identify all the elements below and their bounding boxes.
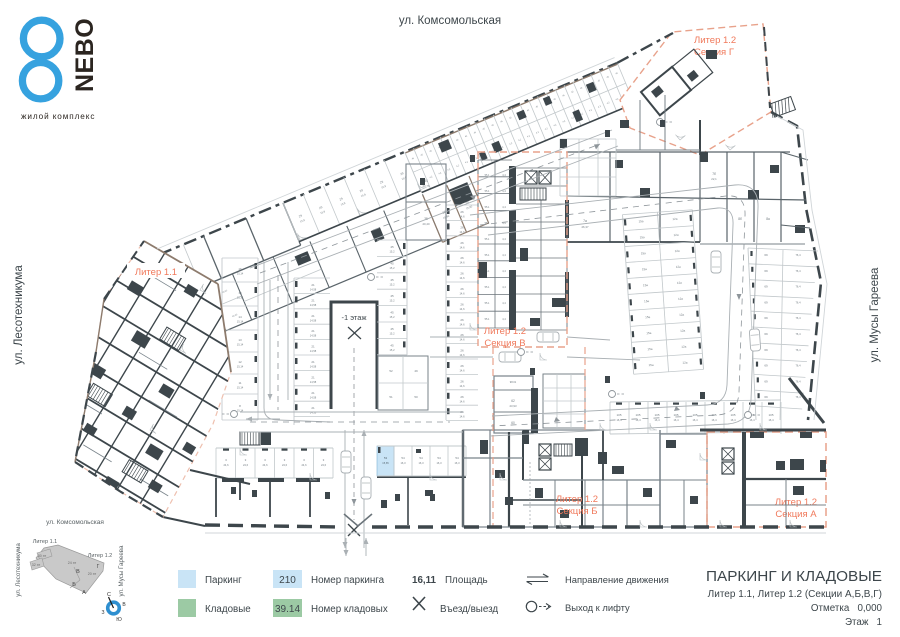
svg-text:С: С bbox=[107, 592, 111, 598]
svg-text:Ю: Ю bbox=[116, 617, 122, 623]
svg-text:39.14: 39.14 bbox=[275, 604, 300, 615]
svg-text:21: 21 bbox=[311, 360, 315, 364]
svg-text:12а: 12а bbox=[680, 329, 686, 333]
svg-text:12а: 12а bbox=[679, 313, 685, 317]
svg-text:14,6: 14,6 bbox=[459, 292, 465, 296]
svg-text:14,6: 14,6 bbox=[459, 415, 465, 419]
svg-text:11: 11 bbox=[238, 381, 241, 385]
svg-text:Выход к лифту: Выход к лифту bbox=[565, 602, 630, 613]
svg-text:16,4: 16,4 bbox=[654, 418, 660, 422]
svg-text:210: 210 bbox=[279, 575, 296, 586]
svg-text:45: 45 bbox=[390, 261, 394, 265]
svg-text:23,93: 23,93 bbox=[510, 404, 517, 408]
svg-text:Секция А: Секция А bbox=[775, 509, 817, 520]
svg-text:49: 49 bbox=[414, 369, 418, 373]
svg-text:Литер 1.2: Литер 1.2 bbox=[694, 35, 736, 46]
svg-text:15а: 15а bbox=[638, 219, 644, 223]
svg-text:16,4: 16,4 bbox=[768, 418, 774, 422]
svg-text:54: 54 bbox=[455, 456, 459, 460]
svg-text:76,4: 76,4 bbox=[795, 316, 801, 320]
svg-text:15,2: 15,2 bbox=[389, 299, 395, 303]
svg-text:69: 69 bbox=[764, 316, 768, 320]
svg-text:21: 21 bbox=[311, 283, 315, 287]
svg-text:69: 69 bbox=[764, 395, 768, 399]
svg-text:Номер паркинга: Номер паркинга bbox=[311, 575, 385, 586]
svg-text:20,40: 20,40 bbox=[423, 222, 430, 226]
svg-text:45: 45 bbox=[390, 327, 394, 331]
svg-text:54: 54 bbox=[401, 456, 405, 460]
svg-text:16,3: 16,3 bbox=[436, 461, 442, 465]
svg-text:45: 45 bbox=[390, 278, 394, 282]
svg-text:8б: 8б bbox=[738, 217, 742, 221]
svg-text:15,2: 15,2 bbox=[389, 315, 395, 319]
svg-text:15а: 15а bbox=[647, 347, 653, 351]
svg-text:76,4: 76,4 bbox=[795, 364, 801, 368]
svg-text:26,37: 26,37 bbox=[582, 225, 589, 229]
svg-text:12а: 12а bbox=[677, 281, 683, 285]
svg-text:15,14: 15,14 bbox=[237, 296, 244, 300]
svg-text:Литер 1.2: Литер 1.2 bbox=[775, 497, 817, 508]
svg-text:69: 69 bbox=[764, 253, 768, 257]
svg-text:21: 21 bbox=[311, 314, 315, 318]
svg-text:А: А bbox=[82, 590, 86, 596]
svg-text:76,4: 76,4 bbox=[795, 285, 801, 289]
svg-text:14,6: 14,6 bbox=[459, 245, 465, 249]
svg-text:14,58: 14,58 bbox=[310, 334, 317, 338]
svg-text:54: 54 bbox=[419, 456, 423, 460]
svg-text:105: 105 bbox=[730, 413, 735, 417]
svg-text:52: 52 bbox=[389, 369, 393, 373]
svg-text:8а: 8а bbox=[766, 217, 770, 221]
svg-text:105: 105 bbox=[654, 413, 659, 417]
svg-text:16,3: 16,3 bbox=[418, 461, 424, 465]
svg-text:7б: 7б bbox=[712, 172, 716, 176]
svg-text:26: 26 bbox=[460, 225, 464, 229]
svg-text:13: 13 bbox=[238, 338, 242, 342]
svg-text:69: 69 bbox=[764, 285, 768, 289]
svg-text:4,4: 4,4 bbox=[502, 286, 506, 289]
svg-text:32 эт: 32 эт bbox=[32, 563, 41, 567]
svg-text:15,2: 15,2 bbox=[389, 348, 395, 352]
svg-text:76,4: 76,4 bbox=[795, 300, 801, 304]
svg-text:14,6: 14,6 bbox=[459, 399, 465, 403]
svg-text:15а: 15а bbox=[642, 267, 648, 271]
svg-text:26: 26 bbox=[460, 272, 464, 276]
svg-text:15,2: 15,2 bbox=[389, 266, 395, 270]
svg-text:15,14: 15,14 bbox=[237, 386, 244, 390]
svg-text:Паркинг: Паркинг bbox=[205, 575, 242, 586]
svg-text:Литер 1.2: Литер 1.2 bbox=[556, 494, 598, 505]
svg-text:21: 21 bbox=[311, 329, 315, 333]
svg-text:55.1: 55.1 bbox=[485, 254, 490, 257]
svg-text:16,11: 16,11 bbox=[412, 575, 437, 586]
svg-text:14,6: 14,6 bbox=[459, 338, 465, 342]
svg-text:76,4: 76,4 bbox=[795, 253, 801, 257]
svg-text:14,6: 14,6 bbox=[459, 276, 465, 280]
svg-text:15а: 15а bbox=[641, 251, 647, 255]
svg-text:ул. Лесотехникума: ул. Лесотехникума bbox=[13, 265, 25, 365]
svg-text:54: 54 bbox=[437, 456, 441, 460]
svg-text:14,6: 14,6 bbox=[459, 353, 465, 357]
svg-text:ул. Мусы Гареева: ул. Мусы Гареева bbox=[118, 545, 125, 596]
svg-text:26: 26 bbox=[460, 395, 464, 399]
svg-text:26: 26 bbox=[460, 241, 464, 245]
svg-text:14,58: 14,58 bbox=[310, 380, 317, 384]
svg-text:22,1: 22,1 bbox=[711, 177, 717, 181]
svg-text:55.1: 55.1 bbox=[485, 238, 490, 241]
svg-text:45: 45 bbox=[390, 311, 394, 315]
svg-text:15а: 15а bbox=[644, 299, 650, 303]
svg-text:76,4: 76,4 bbox=[795, 332, 801, 336]
svg-text:45: 45 bbox=[390, 245, 394, 249]
svg-text:105: 105 bbox=[673, 413, 678, 417]
svg-text:24,6: 24,6 bbox=[243, 463, 249, 467]
svg-text:24,6: 24,6 bbox=[223, 463, 229, 467]
svg-text:14,6: 14,6 bbox=[459, 307, 465, 311]
svg-text:105: 105 bbox=[692, 413, 697, 417]
svg-text:Литер 1.2: Литер 1.2 bbox=[484, 326, 526, 337]
svg-text:12а: 12а bbox=[673, 233, 679, 237]
svg-text:15а: 15а bbox=[646, 331, 652, 335]
svg-text:Кладовые: Кладовые bbox=[205, 604, 251, 615]
svg-text:Этаж 1: Этаж 1 bbox=[845, 617, 882, 628]
svg-text:26: 26 bbox=[460, 256, 464, 260]
svg-text:14,58: 14,58 bbox=[310, 349, 317, 353]
svg-text:55.1: 55.1 bbox=[485, 318, 490, 321]
svg-text:30 эт: 30 эт bbox=[38, 554, 47, 558]
svg-text:105: 105 bbox=[616, 413, 621, 417]
svg-text:12а: 12а bbox=[675, 249, 681, 253]
svg-text:4,4: 4,4 bbox=[502, 238, 506, 241]
svg-text:15,2: 15,2 bbox=[389, 282, 395, 286]
svg-text:Литер 1.1: Литер 1.1 bbox=[33, 539, 57, 545]
svg-text:76,4: 76,4 bbox=[795, 379, 801, 383]
svg-text:Въезд/выезд: Въезд/выезд bbox=[440, 604, 498, 615]
svg-text:ул. Лесотехникума: ул. Лесотехникума bbox=[15, 543, 22, 597]
svg-text:12а: 12а bbox=[681, 344, 687, 348]
svg-text:4,4: 4,4 bbox=[502, 302, 506, 305]
svg-text:14,6: 14,6 bbox=[459, 322, 465, 326]
svg-text:Площадь: Площадь bbox=[445, 575, 488, 586]
svg-text:16: 16 bbox=[238, 267, 242, 271]
svg-text:76,4: 76,4 bbox=[795, 269, 801, 273]
svg-text:26: 26 bbox=[460, 302, 464, 306]
svg-text:21: 21 bbox=[311, 375, 315, 379]
svg-text:14,6: 14,6 bbox=[459, 369, 465, 373]
svg-text:4,4: 4,4 bbox=[502, 254, 506, 257]
svg-text:26: 26 bbox=[460, 210, 464, 214]
svg-text:14,58: 14,58 bbox=[310, 411, 317, 415]
svg-text:14,58: 14,58 bbox=[310, 318, 317, 322]
svg-text:15,14: 15,14 bbox=[237, 365, 244, 369]
svg-text:60: 60 bbox=[511, 421, 515, 425]
svg-text:20 эт: 20 эт bbox=[88, 572, 97, 576]
svg-text:16,4: 16,4 bbox=[692, 418, 698, 422]
svg-text:105: 105 bbox=[768, 413, 773, 417]
svg-text:ул. Комсомольская: ул. Комсомольская bbox=[46, 519, 104, 526]
svg-text:15а: 15а bbox=[639, 235, 645, 239]
svg-text:-1 этаж: -1 этаж bbox=[342, 313, 367, 322]
svg-text:4,4: 4,4 bbox=[502, 318, 506, 321]
svg-text:26: 26 bbox=[460, 349, 464, 353]
svg-text:Литер 1.2: Литер 1.2 bbox=[88, 553, 112, 559]
svg-text:69: 69 bbox=[764, 379, 768, 383]
svg-text:14,58: 14,58 bbox=[310, 365, 317, 369]
svg-text:55.1: 55.1 bbox=[485, 286, 490, 289]
svg-text:26: 26 bbox=[460, 318, 464, 322]
svg-text:В: В bbox=[76, 569, 80, 575]
svg-text:51: 51 bbox=[389, 395, 393, 399]
svg-text:21: 21 bbox=[311, 406, 315, 410]
svg-text:15а: 15а bbox=[645, 315, 651, 319]
svg-text:26: 26 bbox=[460, 287, 464, 291]
svg-text:53: 53 bbox=[384, 456, 388, 460]
svg-text:50: 50 bbox=[414, 395, 418, 399]
svg-text:14,58: 14,58 bbox=[310, 288, 317, 292]
svg-text:15,14: 15,14 bbox=[237, 343, 244, 347]
svg-text:NEBO: NEBO bbox=[71, 18, 99, 92]
svg-text:Б: Б bbox=[72, 582, 76, 588]
svg-text:105: 105 bbox=[635, 413, 640, 417]
svg-text:12а: 12а bbox=[678, 297, 684, 301]
svg-text:4,4: 4,4 bbox=[502, 174, 506, 177]
svg-text:16,4: 16,4 bbox=[673, 418, 679, 422]
svg-text:55.1: 55.1 bbox=[485, 302, 490, 305]
svg-text:15,2: 15,2 bbox=[389, 250, 395, 254]
svg-text:24,6: 24,6 bbox=[301, 463, 307, 467]
svg-text:12а: 12а bbox=[682, 360, 688, 364]
svg-text:14,58: 14,58 bbox=[310, 395, 317, 399]
svg-text:Г: Г bbox=[97, 564, 100, 570]
svg-text:Литер 1.1, Литер 1.2 (Секции А: Литер 1.1, Литер 1.2 (Секции А,Б,В,Г) bbox=[708, 589, 882, 600]
svg-text:14,6: 14,6 bbox=[459, 215, 465, 219]
svg-text:76,4: 76,4 bbox=[795, 395, 801, 399]
svg-text:14: 14 bbox=[238, 315, 242, 319]
svg-text:жилой комплекс: жилой комплекс bbox=[21, 112, 95, 121]
svg-text:45: 45 bbox=[390, 343, 394, 347]
svg-text:Номер кладовых: Номер кладовых bbox=[311, 604, 388, 615]
svg-text:15,14: 15,14 bbox=[237, 272, 244, 276]
svg-text:24,6: 24,6 bbox=[282, 463, 288, 467]
svg-text:16,4: 16,4 bbox=[711, 418, 717, 422]
svg-text:69: 69 bbox=[764, 364, 768, 368]
svg-text:ул. Мусы Гареева: ул. Мусы Гареева bbox=[869, 267, 881, 362]
svg-text:15а: 15а bbox=[643, 283, 649, 287]
svg-text:55.1: 55.1 bbox=[485, 206, 490, 209]
svg-text:15,14: 15,14 bbox=[237, 320, 244, 324]
svg-text:24 эт: 24 эт bbox=[68, 561, 77, 565]
svg-text:21: 21 bbox=[311, 345, 315, 349]
svg-text:14,58: 14,58 bbox=[310, 303, 317, 307]
svg-text:4,4: 4,4 bbox=[502, 270, 506, 273]
svg-text:69: 69 bbox=[764, 300, 768, 304]
svg-text:16,4: 16,4 bbox=[730, 418, 736, 422]
svg-text:Отметка 0,000: Отметка 0,000 bbox=[811, 603, 883, 614]
svg-text:14,6: 14,6 bbox=[459, 261, 465, 265]
svg-text:62: 62 bbox=[511, 399, 515, 403]
svg-text:21: 21 bbox=[311, 298, 315, 302]
svg-text:16,4: 16,4 bbox=[749, 418, 755, 422]
svg-text:З: З bbox=[101, 610, 104, 616]
svg-text:24,6: 24,6 bbox=[321, 463, 327, 467]
svg-text:15: 15 bbox=[238, 291, 242, 295]
svg-text:4,4: 4,4 bbox=[502, 206, 506, 209]
svg-text:16,3: 16,3 bbox=[400, 461, 406, 465]
svg-text:14,6: 14,6 bbox=[459, 230, 465, 234]
svg-text:ПАРКИНГ И КЛАДОВЫЕ: ПАРКИНГ И КЛАДОВЫЕ bbox=[706, 568, 882, 585]
svg-text:15а: 15а bbox=[648, 363, 654, 367]
svg-text:55.1: 55.1 bbox=[485, 190, 490, 193]
svg-text:45: 45 bbox=[390, 294, 394, 298]
svg-text:24,6: 24,6 bbox=[262, 463, 268, 467]
svg-text:12: 12 bbox=[238, 360, 242, 364]
svg-text:26: 26 bbox=[460, 364, 464, 368]
svg-text:12а: 12а bbox=[676, 265, 682, 269]
svg-text:26: 26 bbox=[460, 379, 464, 383]
svg-text:15,65: 15,65 bbox=[382, 461, 389, 465]
svg-text:69: 69 bbox=[764, 269, 768, 273]
svg-text:21: 21 bbox=[311, 391, 315, 395]
svg-text:69: 69 bbox=[764, 348, 768, 352]
svg-text:98.01: 98.01 bbox=[510, 380, 517, 384]
svg-text:12а: 12а bbox=[672, 217, 678, 221]
svg-text:15,2: 15,2 bbox=[389, 332, 395, 336]
svg-text:69: 69 bbox=[764, 332, 768, 336]
svg-text:Литер 1.1: Литер 1.1 bbox=[135, 267, 177, 278]
svg-text:16,3: 16,3 bbox=[454, 461, 460, 465]
svg-text:Направление движения: Направление движения bbox=[565, 574, 669, 585]
svg-text:ул. Комсомольская: ул. Комсомольская bbox=[399, 15, 501, 27]
svg-text:7а: 7а bbox=[583, 219, 587, 223]
svg-text:76,4: 76,4 bbox=[795, 348, 801, 352]
svg-text:Секция В: Секция В bbox=[484, 338, 525, 349]
svg-text:14,6: 14,6 bbox=[459, 384, 465, 388]
svg-text:Секция Б: Секция Б bbox=[556, 506, 597, 517]
